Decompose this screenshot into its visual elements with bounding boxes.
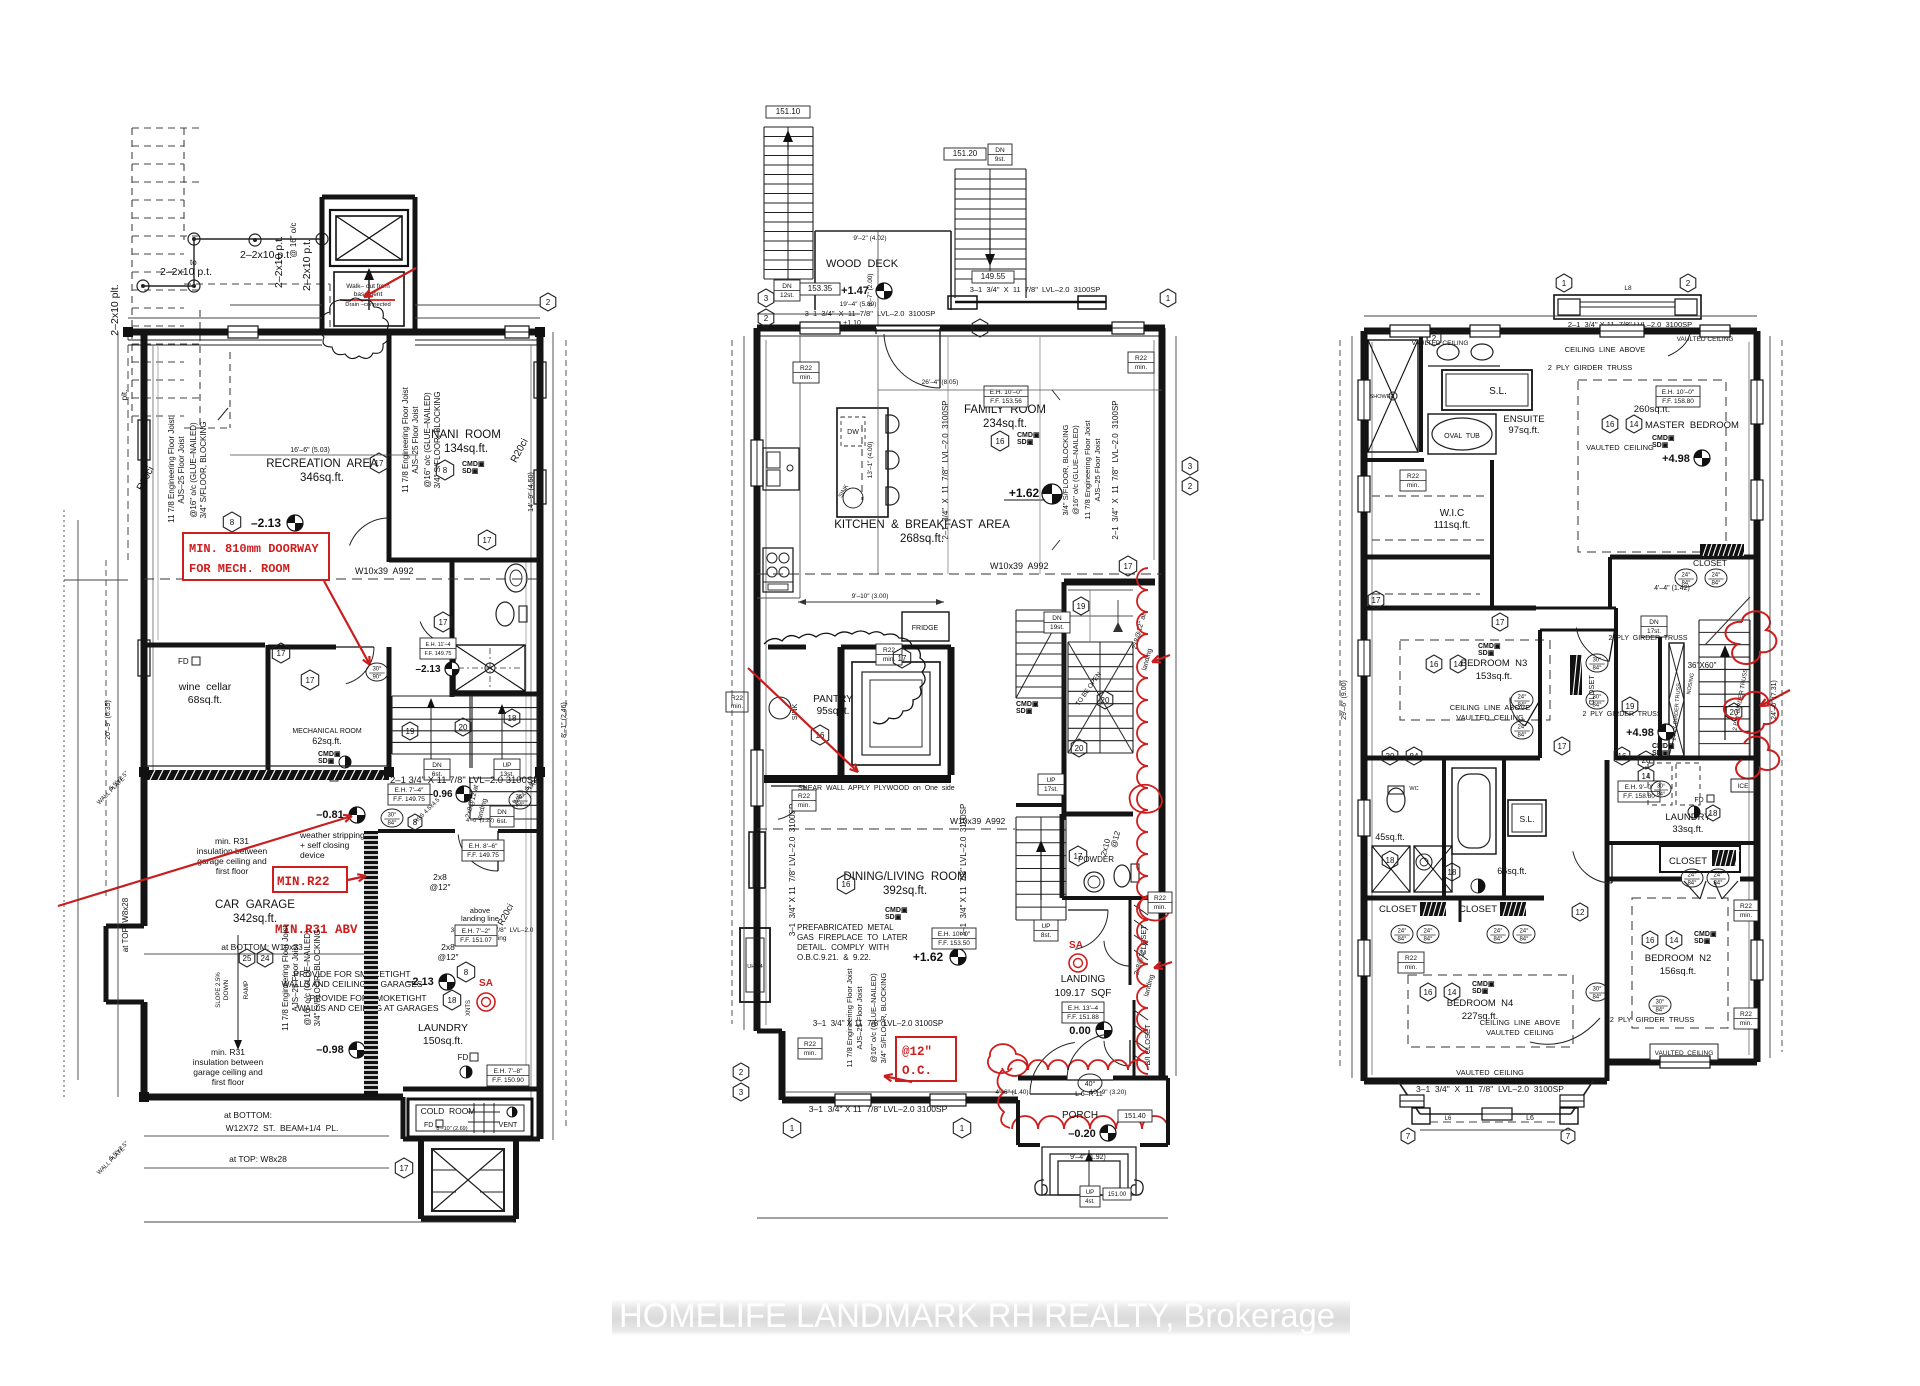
svg-text:FD: FD <box>178 657 189 666</box>
svg-text:F.F. 151.88: F.F. 151.88 <box>1067 1014 1099 1021</box>
svg-text:ICE: ICE <box>1738 783 1750 790</box>
svg-text:7: 7 <box>1566 1132 1571 1141</box>
svg-text:SLOPE 2.5%: SLOPE 2.5% <box>216 972 222 1008</box>
svg-text:LANDING: LANDING <box>1061 974 1106 985</box>
svg-text:84°: 84° <box>1423 937 1433 943</box>
svg-text:F.F. 151.07: F.F. 151.07 <box>460 937 492 944</box>
svg-text:COLD ROOM: COLD ROOM <box>421 1106 476 1116</box>
svg-text:30: 30 <box>1386 752 1395 761</box>
svg-text:BEDROOM N2: BEDROOM N2 <box>1645 953 1712 964</box>
svg-text:RECREATION AREA: RECREATION AREA <box>266 458 378 470</box>
svg-text:F.F. 149.75: F.F. 149.75 <box>467 852 499 859</box>
svg-text:2: 2 <box>739 1068 744 1077</box>
svg-text:153.35: 153.35 <box>808 284 833 293</box>
svg-text:45sq.ft.: 45sq.ft. <box>1375 832 1405 842</box>
svg-text:14'–9″ (4.50): 14'–9″ (4.50) <box>528 472 535 512</box>
svg-text:8: 8 <box>443 466 448 475</box>
svg-text:2: 2 <box>1188 482 1193 491</box>
svg-text:4'–6" (1.40): 4'–6" (1.40) <box>995 1089 1028 1096</box>
svg-text:1: 1 <box>1166 294 1171 303</box>
svg-text:XNTS: XNTS <box>466 1000 472 1016</box>
svg-text:DW: DW <box>847 429 859 436</box>
svg-text:+ self closing: + self closing <box>300 840 350 850</box>
svg-text:CMD▣: CMD▣ <box>1652 743 1675 750</box>
svg-text:17: 17 <box>483 536 492 545</box>
svg-text:24°: 24° <box>1519 929 1529 935</box>
svg-text:KITCHEN & BREAKFAST AREA: KITCHEN & BREAKFAST AREA <box>834 519 1010 531</box>
svg-text:–0.98: –0.98 <box>316 1044 344 1056</box>
svg-text:17: 17 <box>1372 596 1381 605</box>
svg-text:W10x39 A992: W10x39 A992 <box>990 561 1049 571</box>
svg-text:19: 19 <box>406 727 415 736</box>
svg-text:DN: DN <box>1052 615 1062 622</box>
svg-text:134sq.ft.: 134sq.ft. <box>444 443 488 455</box>
svg-text:@16" o/c (GLUE–NAILED): @16" o/c (GLUE–NAILED) <box>1071 425 1080 515</box>
svg-text:19: 19 <box>1077 602 1086 611</box>
svg-text:17: 17 <box>898 654 907 663</box>
svg-text:392sq.ft.: 392sq.ft. <box>883 885 927 897</box>
svg-text:109.17 SQF: 109.17 SQF <box>1055 988 1112 999</box>
svg-text:8'–1″ (2.46): 8'–1″ (2.46) <box>561 702 568 738</box>
svg-text:BEDROOM N4: BEDROOM N4 <box>1447 998 1514 1009</box>
svg-text:3/4" S/FLOOR, BLOCKING: 3/4" S/FLOOR, BLOCKING <box>879 972 888 1063</box>
svg-text:24°: 24° <box>1681 573 1691 579</box>
svg-text:first floor: first floor <box>216 866 249 876</box>
svg-text:151.40: 151.40 <box>1124 1113 1146 1120</box>
svg-text:90°: 90° <box>372 675 382 681</box>
svg-text:@16" o/c (GLUE–NAILED): @16" o/c (GLUE–NAILED) <box>869 973 878 1063</box>
svg-text:@12″: @12″ <box>429 882 450 892</box>
svg-text:8: 8 <box>230 518 235 527</box>
svg-text:16: 16 <box>842 880 851 889</box>
svg-text:17: 17 <box>1558 742 1567 751</box>
svg-text:84°: 84° <box>1687 881 1697 887</box>
svg-text:S.L.: S.L. <box>1519 814 1534 824</box>
svg-text:UP: UP <box>1086 1190 1094 1196</box>
svg-text:84°: 84° <box>1711 581 1721 587</box>
svg-text:CLOSET: CLOSET <box>1459 904 1497 915</box>
svg-text:24°: 24° <box>1687 873 1697 879</box>
svg-text:CLOSET: CLOSET <box>1693 558 1727 568</box>
svg-text:30°: 30° <box>387 813 397 819</box>
svg-text:149.55: 149.55 <box>981 272 1006 281</box>
svg-text:F.F. 149.75: F.F. 149.75 <box>393 796 425 803</box>
svg-text:HOMELIFE LANDMARK RH REALTY, B: HOMELIFE LANDMARK RH REALTY, Brokerage <box>619 1297 1335 1335</box>
svg-text:2–2x10 plt.: 2–2x10 plt. <box>109 284 121 335</box>
svg-text:30°: 30° <box>1655 1000 1665 1006</box>
svg-text:17st.: 17st. <box>1044 786 1058 793</box>
svg-text:DN: DN <box>497 809 507 816</box>
svg-text:DETAIL. COMPLY WITH: DETAIL. COMPLY WITH <box>797 943 889 952</box>
svg-text:@12": @12" <box>902 1045 932 1059</box>
svg-text:18: 18 <box>1709 809 1718 818</box>
svg-text:16: 16 <box>1430 660 1439 669</box>
svg-text:CMD▣: CMD▣ <box>885 907 908 914</box>
svg-text:CEILING LINE ABOVE: CEILING LINE ABOVE <box>1480 1018 1560 1027</box>
svg-text:LAUNDRY: LAUNDRY <box>418 1022 468 1034</box>
svg-text:151.20: 151.20 <box>953 149 978 158</box>
svg-text:151.00: 151.00 <box>1108 1192 1127 1198</box>
svg-text:2 PLY GIRDER TRUSS: 2 PLY GIRDER TRUSS <box>1548 363 1633 372</box>
svg-text:24°: 24° <box>1423 929 1433 935</box>
svg-text:66sq.ft.: 66sq.ft. <box>1497 866 1527 876</box>
svg-text:landing line: landing line <box>461 914 499 923</box>
svg-text:11 7/8 Engineering Floor Joist: 11 7/8 Engineering Floor Joist <box>167 416 176 522</box>
svg-text:SHOWER: SHOWER <box>1370 394 1395 400</box>
svg-text:VAULTED CEILING: VAULTED CEILING <box>1586 443 1654 452</box>
svg-text:2x8: 2x8 <box>441 942 455 952</box>
svg-text:3: 3 <box>764 294 769 303</box>
svg-text:84°: 84° <box>1519 937 1529 943</box>
svg-text:11 7/8 Engineering Floor Joist: 11 7/8 Engineering Floor Joist <box>1083 420 1092 520</box>
svg-text:SD▣: SD▣ <box>462 468 479 475</box>
svg-text:4'–4" (1.42): 4'–4" (1.42) <box>1654 585 1690 592</box>
svg-text:F.F. 158.80: F.F. 158.80 <box>1662 398 1694 405</box>
svg-text:2–2x10 p.t.: 2–2x10 p.t. <box>301 239 313 291</box>
svg-text:24'–0″ (7.31): 24'–0″ (7.31) <box>1771 680 1778 720</box>
svg-text:17: 17 <box>306 676 315 685</box>
svg-text:36"X60": 36"X60" <box>1688 661 1717 670</box>
svg-text:84°: 84° <box>387 821 397 827</box>
svg-text:DOWN: DOWN <box>223 979 230 1000</box>
svg-text:20: 20 <box>1075 744 1084 753</box>
svg-text:84°: 84° <box>1592 995 1602 1001</box>
svg-text:2–2x10 p.t.: 2–2x10 p.t. <box>160 266 212 278</box>
svg-text:24°: 24° <box>1493 929 1503 935</box>
svg-text:151.10: 151.10 <box>776 107 801 116</box>
svg-text:FOR MECH. ROOM: FOR MECH. ROOM <box>189 562 290 576</box>
svg-text:9'–4″ (1.92): 9'–4″ (1.92) <box>1070 1154 1106 1161</box>
svg-text:84°: 84° <box>1397 937 1407 943</box>
svg-text:3/4" S/FLOOR, BLOCKING: 3/4" S/FLOOR, BLOCKING <box>313 929 322 1026</box>
svg-text:8'–10″ (2.69): 8'–10″ (2.69) <box>436 1126 467 1132</box>
svg-text:R22: R22 <box>1740 903 1752 910</box>
svg-text:20: 20 <box>1101 696 1110 705</box>
svg-text:6st.: 6st. <box>497 818 508 825</box>
svg-text:F.F. 153.50: F.F. 153.50 <box>938 940 970 947</box>
svg-text:min.: min. <box>1405 964 1417 971</box>
svg-text:111sq.ft.: 111sq.ft. <box>1434 520 1471 531</box>
svg-text:R22: R22 <box>1405 955 1417 962</box>
svg-text:CMD▣: CMD▣ <box>1472 981 1495 988</box>
svg-text:4st.: 4st. <box>1085 1199 1095 1205</box>
svg-text:3–1 3/4" X 11 7/8" LVL–2.0: 3–1 3/4" X 11 7/8" LVL–2.0 3100SP <box>788 804 797 937</box>
svg-text:AJS–25 Floor Joist: AJS–25 Floor Joist <box>1093 438 1102 502</box>
svg-text:SD▣: SD▣ <box>1017 439 1034 446</box>
svg-text:R22: R22 <box>1407 473 1419 480</box>
svg-text:2: 2 <box>1686 279 1691 288</box>
svg-text:UHL 4: UHL 4 <box>747 964 762 970</box>
svg-text:19'–4″ (5.89): 19'–4″ (5.89) <box>840 301 877 308</box>
svg-text:3/4" S/FLOOR, BLOCKING: 3/4" S/FLOOR, BLOCKING <box>199 421 208 518</box>
svg-text:3–1 3/4" X 11 7/8" LVL–2.0 3: 3–1 3/4" X 11 7/8" LVL–2.0 3100SP <box>809 1104 948 1114</box>
svg-text:24: 24 <box>261 954 270 963</box>
svg-text:O.B.C.9.21. & 9.22.: O.B.C.9.21. & 9.22. <box>797 953 871 962</box>
svg-text:+1.62: +1.62 <box>913 950 944 964</box>
svg-text:24°: 24° <box>1713 873 1723 879</box>
svg-text:3: 3 <box>978 324 983 333</box>
svg-text:MIN. 810mm DOORWAY: MIN. 810mm DOORWAY <box>189 542 319 556</box>
svg-text:4'–0″ (1.22): 4'–0″ (1.22) <box>466 818 494 824</box>
svg-text:@16" o/c (GLUE–NAILED): @16" o/c (GLUE–NAILED) <box>189 422 198 518</box>
svg-text:GAS FIREPLACE TO LATER: GAS FIREPLACE TO LATER <box>797 933 908 942</box>
svg-text:12: 12 <box>1576 908 1585 917</box>
svg-text:14: 14 <box>1642 772 1651 781</box>
svg-text:–2.13: –2.13 <box>415 664 440 675</box>
svg-text:E.H. 7'–8″: E.H. 7'–8″ <box>494 1068 524 1075</box>
svg-text:PREFABRICATED METAL: PREFABRICATED METAL <box>797 923 894 932</box>
svg-text:@ 16" o/c: @ 16" o/c <box>289 223 298 258</box>
svg-text:+4.98: +4.98 <box>1626 727 1654 739</box>
svg-text:11 7/8 Engineering Floor Joist: 11 7/8 Engineering Floor Joist <box>401 386 410 492</box>
svg-text:150sq.ft.: 150sq.ft. <box>423 1035 463 1047</box>
svg-text:CMD▣: CMD▣ <box>1652 435 1675 442</box>
svg-text:min.: min. <box>1154 904 1166 911</box>
svg-text:19: 19 <box>1626 702 1635 711</box>
svg-text:F.F. 150.90: F.F. 150.90 <box>492 1077 524 1084</box>
svg-text:11 7/8 Engineering Floor Joist: 11 7/8 Engineering Floor Joist <box>845 968 854 1068</box>
svg-text:24°: 24° <box>1397 929 1407 935</box>
svg-text:W12X72 ST. BEAM+1/4 PL.: W12X72 ST. BEAM+1/4 PL. <box>226 1123 339 1133</box>
svg-text:L6: L6 <box>1526 1115 1534 1122</box>
svg-text:40°: 40° <box>1085 1080 1096 1088</box>
svg-text:wine cellar: wine cellar <box>178 681 232 693</box>
svg-text:at TOP: W8x28: at TOP: W8x28 <box>121 897 130 952</box>
svg-text:ENSUITE: ENSUITE <box>1503 414 1544 425</box>
svg-text:8st.: 8st. <box>1041 932 1052 939</box>
svg-text:3–1 3/4" X 11 7/8" LVL–2.: 3–1 3/4" X 11 7/8" LVL–2.0 3100SP <box>805 309 936 318</box>
svg-text:17st.: 17st. <box>1647 628 1661 635</box>
svg-text:7: 7 <box>1406 1132 1411 1141</box>
svg-text:CMD▣: CMD▣ <box>1016 701 1039 708</box>
svg-text:2x8: 2x8 <box>433 872 447 882</box>
svg-text:SD▣: SD▣ <box>1472 988 1489 995</box>
svg-text:84°: 84° <box>1592 666 1602 672</box>
svg-text:CMD▣: CMD▣ <box>318 751 341 758</box>
svg-text:VAULTED CEILING: VAULTED CEILING <box>1486 1028 1554 1037</box>
svg-text:3: 3 <box>1188 462 1193 471</box>
svg-text:E.H. 7'–4″: E.H. 7'–4″ <box>395 787 425 794</box>
svg-text:FD: FD <box>1694 797 1703 804</box>
svg-text:95sq.ft.: 95sq.ft. <box>817 706 850 717</box>
svg-text:E.H. 7'–2″: E.H. 7'–2″ <box>462 928 492 935</box>
svg-text:153sq.ft.: 153sq.ft. <box>1476 671 1512 682</box>
svg-text:268sq.ft.: 268sq.ft. <box>900 533 944 545</box>
svg-text:1: 1 <box>790 1124 795 1133</box>
svg-text:346sq.ft.: 346sq.ft. <box>300 472 344 484</box>
svg-text:min.: min. <box>1407 482 1419 489</box>
svg-text:+1.47: +1.47 <box>841 285 869 297</box>
svg-text:8: 8 <box>464 968 469 977</box>
svg-text:33sq.ft.: 33sq.ft. <box>1672 824 1703 835</box>
svg-text:FD: FD <box>458 1053 469 1062</box>
svg-text:342sq.ft.: 342sq.ft. <box>233 913 277 925</box>
svg-text:234sq.ft.: 234sq.ft. <box>983 418 1027 430</box>
svg-text:DN: DN <box>1649 619 1659 626</box>
svg-text:10'–9" (3.20): 10'–9" (3.20) <box>1090 1089 1127 1096</box>
svg-text:DN: DN <box>782 283 792 290</box>
svg-text:84°: 84° <box>1517 733 1527 739</box>
svg-text:min. R31: min. R31 <box>215 836 249 846</box>
svg-text:first floor: first floor <box>212 1077 245 1087</box>
svg-text:MECHANICAL ROOM: MECHANICAL ROOM <box>292 728 362 735</box>
svg-text:0.00: 0.00 <box>1069 1025 1090 1037</box>
svg-text:–2.13: –2.13 <box>251 516 281 530</box>
svg-text:OVAL TUB: OVAL TUB <box>1444 433 1480 440</box>
svg-text:1: 1 <box>1562 279 1567 288</box>
svg-text:W10x39 A992: W10x39 A992 <box>355 566 414 576</box>
svg-text:CMD▣: CMD▣ <box>1694 931 1717 938</box>
svg-text:2–1 3/4" X 11 7/8" LVL–2.: 2–1 3/4" X 11 7/8" LVL–2.0 3100SP <box>941 400 950 539</box>
svg-text:14: 14 <box>1448 988 1457 997</box>
svg-text:L8: L8 <box>1624 285 1632 292</box>
svg-text:FD: FD <box>424 1122 433 1129</box>
svg-text:CEILING LINE ABOVE: CEILING LINE ABOVE <box>1565 345 1645 354</box>
svg-text:CLOSET: CLOSET <box>1669 856 1707 867</box>
svg-text:18: 18 <box>508 714 517 723</box>
svg-text:MASTER BEDROOM: MASTER BEDROOM <box>1645 420 1739 431</box>
svg-text:13'–1″ (4.00): 13'–1″ (4.00) <box>867 442 874 479</box>
svg-text:18: 18 <box>448 996 457 1005</box>
svg-text:at BOTTOM:: at BOTTOM: <box>224 1110 272 1120</box>
svg-text:19st.: 19st. <box>1050 624 1064 631</box>
svg-text:R22: R22 <box>798 793 810 800</box>
svg-text:17: 17 <box>400 1164 409 1173</box>
svg-text:S.L.: S.L. <box>1489 386 1507 397</box>
svg-text:@12″: @12″ <box>437 952 458 962</box>
svg-text:–0.96: –0.96 <box>427 789 452 800</box>
svg-text:E.H. 10'–0″: E.H. 10'–0″ <box>1662 389 1695 396</box>
svg-text:min.: min. <box>731 703 743 710</box>
svg-text:8: 8 <box>413 818 418 827</box>
svg-text:F.F. 158.80: F.F. 158.80 <box>1623 793 1655 800</box>
svg-text:@16" o/c (GLUE–NAILED): @16" o/c (GLUE–NAILED) <box>423 392 432 488</box>
svg-text:62sq.ft.: 62sq.ft. <box>312 736 342 746</box>
svg-text:UP: UP <box>1041 923 1050 930</box>
svg-text:DN: DN <box>995 147 1005 154</box>
svg-text:insulation between: insulation between <box>193 1057 264 1067</box>
svg-text:97sq.ft.: 97sq.ft. <box>1508 425 1539 436</box>
svg-text:16: 16 <box>1646 936 1655 945</box>
svg-text:2 PLY GIRDER TRUSS: 2 PLY GIRDER TRUSS <box>1609 635 1688 642</box>
svg-text:2: 2 <box>546 298 551 307</box>
svg-text:F.F. 149.75: F.F. 149.75 <box>425 651 452 657</box>
svg-text:E.H. 11'–4: E.H. 11'–4 <box>425 642 450 648</box>
svg-text:@16" o/c (GLUE–NAILED): @16" o/c (GLUE–NAILED) <box>303 930 312 1026</box>
svg-text:3–1 3/4" X 11 7/8" LVL–2.: 3–1 3/4" X 11 7/8" LVL–2.0 3100SP <box>1416 1084 1564 1094</box>
svg-text:insulation between: insulation between <box>197 846 268 856</box>
svg-text:AJS–25 Floor Joist: AJS–25 Floor Joist <box>411 406 420 474</box>
svg-text:UP: UP <box>1046 777 1055 784</box>
svg-text:17: 17 <box>439 618 448 627</box>
svg-text:3/4" S/FLOOR, BLOCKING: 3/4" S/FLOOR, BLOCKING <box>433 391 442 488</box>
svg-text:WOOD DECK: WOOD DECK <box>826 258 899 270</box>
svg-text:1: 1 <box>960 1124 965 1133</box>
svg-text:30°: 30° <box>372 667 382 673</box>
svg-text:PORCH: PORCH <box>1062 1110 1098 1121</box>
svg-text:PANTRY: PANTRY <box>813 694 853 705</box>
svg-text:25: 25 <box>243 954 252 963</box>
svg-text:R22: R22 <box>1135 355 1147 362</box>
svg-text:E.H. 13'–4: E.H. 13'–4 <box>1068 1005 1099 1012</box>
svg-text:VENT: VENT <box>499 1122 518 1129</box>
svg-text:30°: 30° <box>1592 987 1602 993</box>
svg-text:17: 17 <box>277 649 286 658</box>
svg-text:2: 2 <box>764 314 769 323</box>
svg-text:CMD▣: CMD▣ <box>1478 643 1501 650</box>
svg-text:84°: 84° <box>1655 1008 1665 1014</box>
svg-text:SD▣: SD▣ <box>318 758 335 765</box>
svg-text:17: 17 <box>375 459 384 468</box>
svg-text:3–1 3/4" X 11 7/8" LVL–2.: 3–1 3/4" X 11 7/8" LVL–2.0 3100SP <box>970 285 1101 294</box>
svg-text:at TOP: W8x28: at TOP: W8x28 <box>229 1154 287 1164</box>
svg-text:–2.13: –2.13 <box>406 976 434 988</box>
svg-text:DINING/LIVING ROOM: DINING/LIVING ROOM <box>843 871 966 883</box>
svg-text:L6: L6 <box>1445 1116 1452 1122</box>
svg-text:2 PLY GIRDER TRUSS: 2 PLY GIRDER TRUSS <box>1583 711 1662 718</box>
svg-text:24°: 24° <box>1517 695 1527 701</box>
svg-text:UP: UP <box>502 762 511 769</box>
svg-text:VAULTED CEILING: VAULTED CEILING <box>1456 1068 1524 1077</box>
svg-text:E.H. 9'–0″: E.H. 9'–0″ <box>1625 784 1655 791</box>
svg-text:RAMP: RAMP <box>243 981 250 1000</box>
svg-text:R22: R22 <box>1740 1011 1752 1018</box>
svg-text:AJS–25 Floor Joist: AJS–25 Floor Joist <box>291 944 300 1012</box>
svg-text:29'–6″ (9.00): 29'–6″ (9.00) <box>1341 680 1348 720</box>
svg-text:FRIDGE: FRIDGE <box>912 625 939 632</box>
svg-text:DN: DN <box>432 762 442 769</box>
svg-text:–0.20: –0.20 <box>1068 1128 1096 1140</box>
svg-text:CAR GARAGE: CAR GARAGE <box>215 899 295 911</box>
svg-text:14: 14 <box>1454 660 1463 669</box>
svg-text:9'–10″ (3.00): 9'–10″ (3.00) <box>852 593 889 600</box>
svg-text:16: 16 <box>1424 988 1433 997</box>
svg-text:garage ceiling and: garage ceiling and <box>193 1067 263 1077</box>
svg-text:SHEAR WALL APPLY PLYWOOD o: SHEAR WALL APPLY PLYWOOD on One side <box>798 785 955 792</box>
svg-text:SD▣: SD▣ <box>1478 650 1495 657</box>
svg-text:156sq.ft.: 156sq.ft. <box>1660 966 1696 977</box>
svg-text:3–1 3/4" X 11 7/8" LVL–2.0 3: 3–1 3/4" X 11 7/8" LVL–2.0 3100SP <box>813 1019 943 1028</box>
svg-text:F.F. 153.56: F.F. 153.56 <box>990 398 1022 405</box>
svg-text:R22: R22 <box>804 1041 816 1048</box>
svg-text:device: device <box>300 850 325 860</box>
svg-text:min.: min. <box>804 1050 816 1057</box>
svg-text:20: 20 <box>459 723 468 732</box>
svg-text:Drain –connected: Drain –connected <box>345 302 390 308</box>
svg-text:84°: 84° <box>1657 792 1665 798</box>
svg-text:3–1 3/4" X 11 7/8" LVL–2.0: 3–1 3/4" X 11 7/8" LVL–2.0 3100SP <box>959 804 968 937</box>
svg-text:2–1 3/4" X 11 7/8" LVL–2.: 2–1 3/4" X 11 7/8" LVL–2.0 3100SP <box>1111 400 1120 539</box>
svg-text:14: 14 <box>1630 420 1639 429</box>
svg-text:14: 14 <box>1670 936 1679 945</box>
svg-text:SD▣: SD▣ <box>885 914 902 921</box>
svg-text:12st.: 12st. <box>780 292 794 299</box>
svg-text:84°: 84° <box>1592 703 1602 709</box>
svg-text:+1.62: +1.62 <box>1009 486 1040 500</box>
svg-text:min. R31: min. R31 <box>211 1047 245 1057</box>
svg-text:3: 3 <box>739 1088 744 1097</box>
svg-text:16'–6" (5.03): 16'–6" (5.03) <box>290 447 330 454</box>
svg-text:SD▣: SD▣ <box>1016 708 1033 715</box>
svg-text:17: 17 <box>1124 562 1133 571</box>
svg-text:AJS–25 Floor Joist: AJS–25 Floor Joist <box>855 986 864 1050</box>
svg-text:min.: min. <box>798 802 810 809</box>
svg-text:SD▣: SD▣ <box>1694 938 1711 945</box>
svg-text:2: 2 <box>1432 334 1437 343</box>
svg-text:WC: WC <box>1409 786 1418 792</box>
svg-text:26'–4″ (8.05): 26'–4″ (8.05) <box>922 379 959 386</box>
svg-text:3/4" S/FLOOR, BLOCKING: 3/4" S/FLOOR, BLOCKING <box>1061 424 1070 515</box>
